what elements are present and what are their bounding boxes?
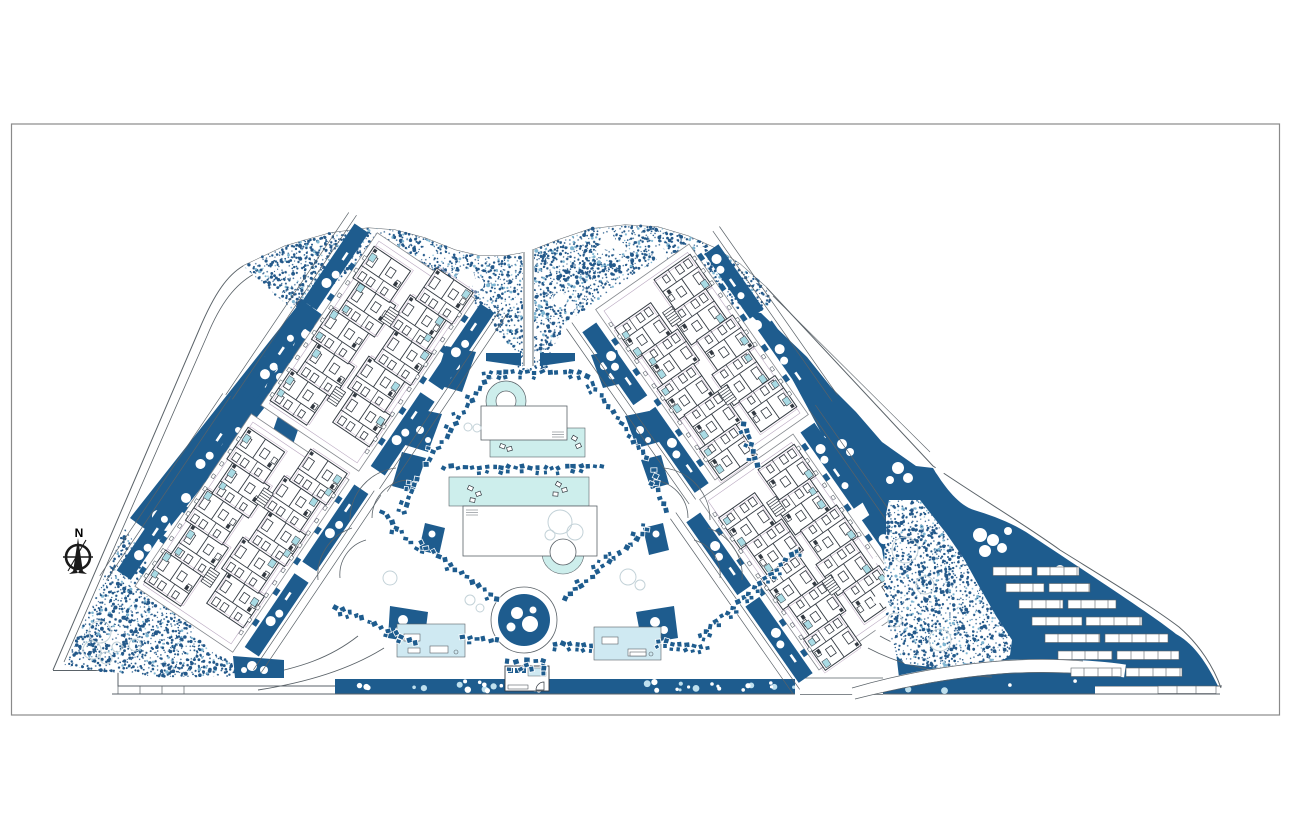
svg-text:N: N bbox=[75, 526, 84, 540]
